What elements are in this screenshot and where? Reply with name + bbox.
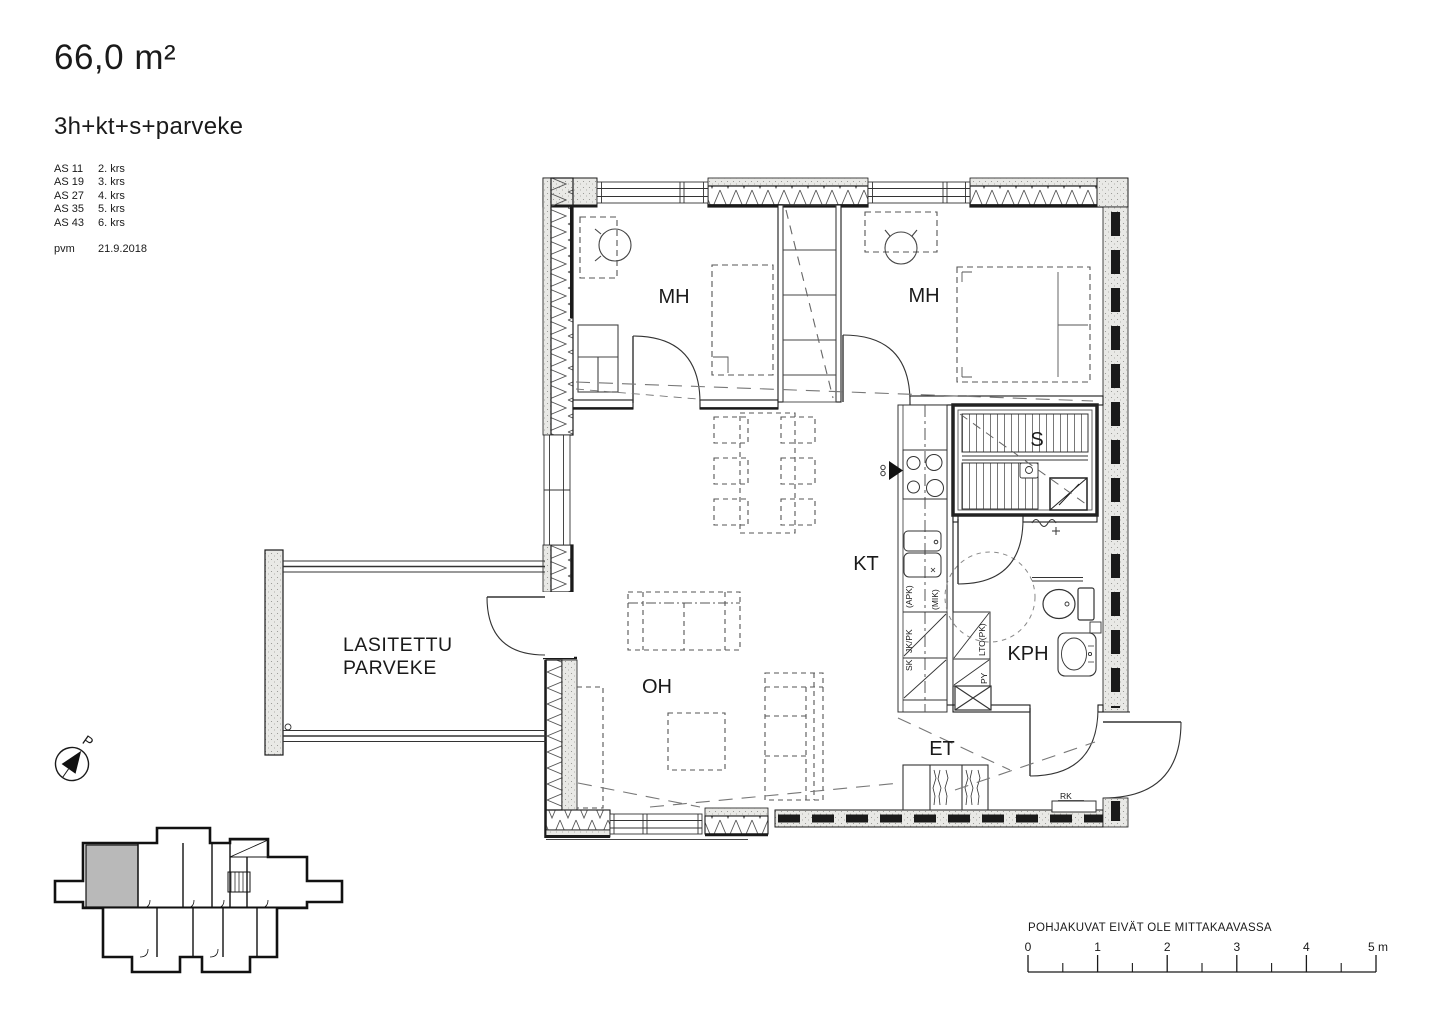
toilet-icon: [1043, 588, 1094, 620]
highlighted-unit: [86, 845, 138, 907]
coffee-table: [668, 713, 725, 770]
compass: P: [49, 725, 106, 787]
label-fridge: JK/PK: [904, 629, 914, 653]
sauna: [953, 405, 1097, 515]
desk: [580, 217, 617, 278]
room-label-bedroom1: MH: [658, 286, 689, 308]
electrical-cabinet: [1052, 801, 1096, 812]
window-top-left: [597, 182, 708, 203]
scale-tick-3: 3: [1233, 940, 1240, 954]
room-label-sauna: S: [1030, 429, 1043, 451]
scale-bar: POHJAKUVAT EIVÄT OLE MITTAKAAVASSA 0 1 2…: [1025, 922, 1388, 972]
label-cleaning-closet: SK: [904, 659, 914, 671]
bedroom-closet: [783, 205, 836, 402]
drain-icon: [285, 724, 291, 730]
bathroom-door: [1030, 708, 1098, 776]
balcony-label-line1: LASITETTU: [343, 634, 453, 656]
compass-north-label: P: [80, 732, 97, 750]
dining-table-set: [714, 413, 815, 533]
room-label-bedroom2: MH: [908, 285, 939, 307]
bed-double: [957, 267, 1090, 382]
label-dishwasher: (APK): [904, 585, 914, 608]
balcony-label-line2: PARVEKE: [343, 657, 437, 679]
floorplan-page: 66,0 m² 3h+kt+s+parveke AS 112. krs AS 1…: [0, 0, 1440, 1018]
scale-tick-5: 5 m: [1368, 940, 1388, 954]
room-label-kitchen: KT: [853, 553, 879, 575]
window-left: [544, 435, 570, 545]
entry-hall: [903, 765, 1096, 812]
scale-tick-4: 4: [1303, 940, 1310, 954]
scale-disclaimer: POHJAKUVAT EIVÄT OLE MITTAKAAVASSA: [1028, 922, 1272, 934]
room-label-bathroom: KPH: [1007, 643, 1048, 665]
scale-tick-2: 2: [1164, 940, 1171, 954]
label-heat-recovery: LTO(PK): [977, 623, 987, 656]
scale-tick-0: 0: [1025, 940, 1032, 954]
room-label-entry: ET: [929, 738, 955, 760]
sink-icon: [1058, 633, 1096, 676]
sofa-horizontal: [628, 592, 740, 650]
room-label-living: OH: [642, 676, 672, 698]
label-electrical: RK: [1060, 791, 1072, 801]
window-bottom: [610, 814, 702, 834]
chair-icon: [885, 232, 917, 264]
scale-tick-1: 1: [1094, 940, 1101, 954]
balcony-door: [487, 597, 545, 655]
bed-single: [712, 265, 773, 375]
sauna-door: [958, 519, 1023, 584]
bedroom1-door: [633, 336, 700, 403]
label-microwave: (MIK): [930, 589, 940, 610]
sauna-bench-upper: [962, 414, 1088, 452]
sofa-vertical: [765, 673, 823, 800]
shelf: [577, 687, 603, 808]
key-plan: [55, 828, 342, 972]
floor-plan-drawing: MH MH S KT KPH OH ET LASITETTU PARVEKE (…: [0, 0, 1440, 1018]
chair-icon: [599, 229, 631, 261]
label-washer: PY: [979, 672, 989, 684]
window-top-right: [868, 182, 970, 203]
